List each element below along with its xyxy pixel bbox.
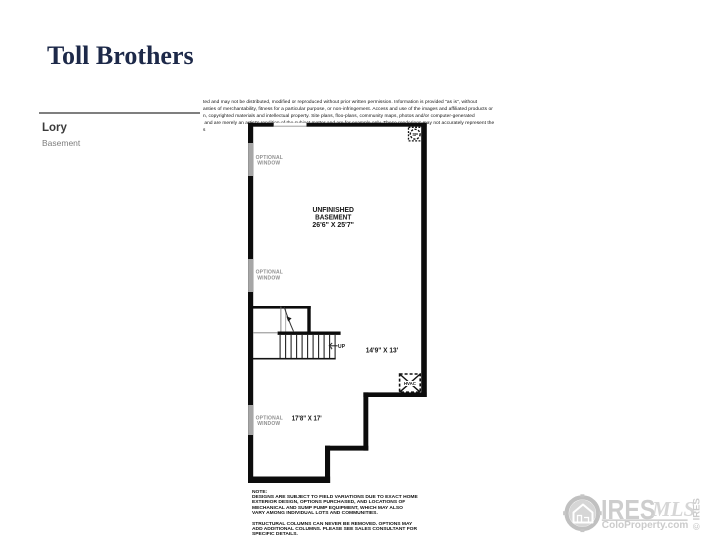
svg-text:ColoProperty.com: ColoProperty.com	[602, 519, 689, 531]
svg-text:WINDOW: WINDOW	[257, 275, 280, 281]
svg-text:26'6" X 25'7": 26'6" X 25'7"	[312, 220, 354, 229]
svg-text:SP: SP	[412, 132, 418, 137]
svg-text:17'8" X 17': 17'8" X 17'	[292, 414, 322, 423]
svg-text:UP: UP	[338, 344, 346, 350]
svg-text:14'9" X 13': 14'9" X 13'	[366, 345, 399, 354]
svg-text:© IRES: © IRES	[692, 498, 703, 530]
svg-text:MLS: MLS	[651, 497, 695, 521]
svg-text:WINDOW: WINDOW	[257, 161, 280, 167]
svg-text:WINDOW: WINDOW	[257, 421, 280, 427]
svg-text:HVAC: HVAC	[404, 381, 417, 386]
